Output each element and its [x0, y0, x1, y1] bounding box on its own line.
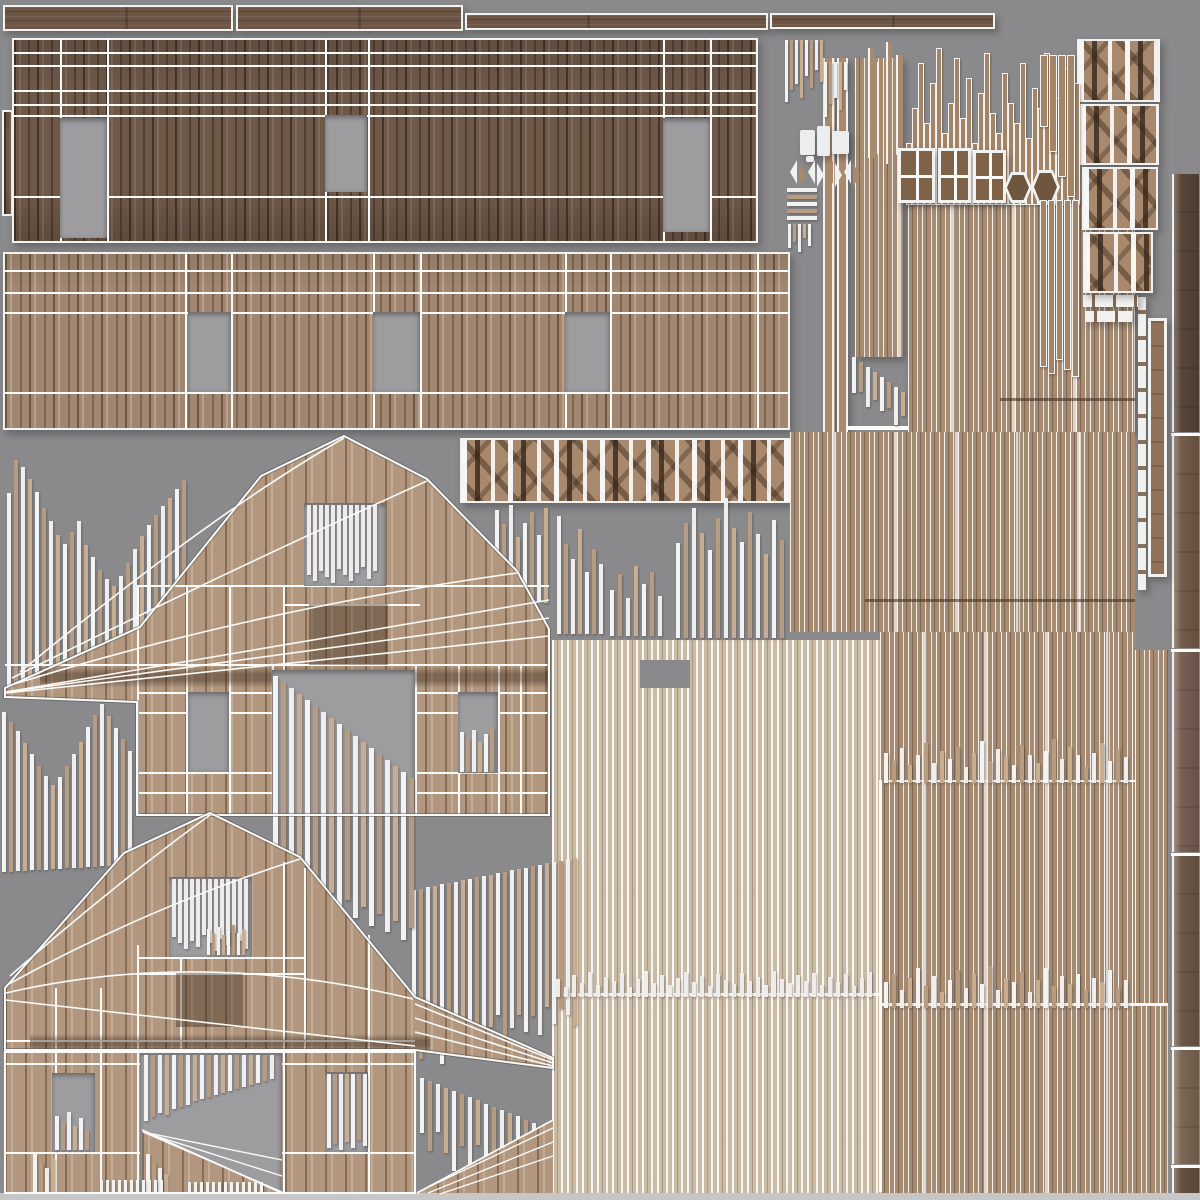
panel-seam: [846, 426, 908, 430]
slat-comb-slat: [756, 534, 760, 638]
loose-slats-slat: [785, 40, 788, 102]
loose-slats-slat: [844, 62, 847, 90]
plank-single: [886, 42, 892, 164]
door-slat-comb-slat: [361, 742, 366, 907]
door-hanging-comb-slat: [256, 1055, 260, 1083]
braced-door-panel: [1083, 232, 1153, 293]
door-hanging-comb-slat: [263, 1055, 267, 1081]
hayloft-inner-comb-slat: [242, 929, 245, 955]
framed-slats-slat: [1056, 200, 1063, 360]
cutout-comb-slat: [55, 1116, 59, 1150]
hayloft-inner-comb-slat: [227, 931, 230, 955]
hayloft-comb-slat: [325, 505, 329, 577]
field-top-comb-slat: [1108, 761, 1112, 783]
slat-comb-slat: [121, 739, 125, 865]
slat-comb-slat: [764, 554, 768, 638]
field-top-comb-slat: [796, 975, 800, 997]
11-tick: [118, 1180, 121, 1192]
field-top-comb-slat: [964, 767, 968, 783]
hardware-blocks: [800, 130, 815, 155]
window-cutout: [188, 692, 229, 772]
dark-patch: [176, 973, 243, 1027]
field-top-comb-slat: [1108, 970, 1112, 1008]
slat-comb-slat: [128, 751, 132, 865]
corner-board-stack-segment: [1172, 1050, 1199, 1164]
slat-comb-slat: [658, 596, 662, 636]
slat-comb-slat: [489, 875, 493, 1027]
field-top-comb-slat: [884, 753, 888, 783]
door-slat-comb-slat: [329, 718, 334, 893]
window-frame-mullion: [901, 175, 932, 178]
field-top-comb-slat: [932, 976, 936, 1008]
framed-slats-slat: [1072, 200, 1079, 377]
field-top-comb-slat: [892, 974, 896, 1008]
step-comb-slat: [901, 392, 905, 416]
hayloft-inner-comb-slat: [232, 925, 235, 955]
field-top-comb-slat: [1068, 984, 1072, 1008]
door-hanging-comb-slat: [249, 1055, 253, 1085]
slat-comb-slat: [23, 743, 27, 871]
loose-slats-slat: [808, 224, 811, 246]
slat-field-left: [552, 640, 880, 995]
field-top-comb-slat: [764, 985, 768, 997]
window-cutout: [188, 312, 231, 392]
slat-comb-slat: [626, 598, 630, 636]
slat-comb-slat: [557, 516, 561, 634]
door-hanging-comb-slat: [242, 1055, 246, 1087]
small-comb-slat: [51, 1158, 55, 1192]
canvas-bottom-edge: [0, 1193, 1200, 1200]
5-rung: [787, 202, 817, 206]
slat-comb-slat: [564, 544, 568, 634]
slat-comb-slat: [79, 742, 83, 868]
top-trim-strip-3: [465, 13, 768, 30]
field-top-comb-slat: [1044, 968, 1048, 1008]
field-top-comb-slat: [588, 972, 592, 997]
small-comb-slat: [39, 1162, 43, 1192]
tail-comb-slat: [476, 1100, 480, 1145]
wire: [283, 585, 285, 670]
slat-comb-slat: [7, 493, 11, 688]
11-tick: [142, 1180, 145, 1192]
cutout-comb-slat: [363, 1074, 367, 1146]
field-top-comb-slat: [996, 990, 1000, 1008]
hayloft-comb-slat: [349, 505, 353, 581]
cutout-comb-slat: [351, 1074, 355, 1148]
field-top-comb-slat: [860, 978, 864, 997]
field-top-comb-slat: [1100, 982, 1104, 1008]
field-top-comb-slat: [804, 981, 808, 997]
slat-comb-slat: [544, 508, 548, 603]
cutout-comb-slat: [61, 1122, 65, 1150]
field-top-comb-slat: [884, 982, 888, 1008]
field-top-comb-slat: [988, 966, 992, 1008]
door-hanging-comb-slat: [270, 1055, 274, 1079]
plank-single: [877, 62, 883, 154]
field-top-comb-slat: [940, 751, 944, 783]
plank-single: [868, 48, 874, 158]
field-top-comb-slat: [1124, 980, 1128, 1008]
5-rung: [787, 209, 817, 213]
13-tick: [194, 1182, 197, 1192]
step-comb-slat: [880, 377, 884, 411]
field-top-comb-slat: [1076, 755, 1080, 783]
slat-comb-slat: [14, 460, 18, 688]
hardware-blocks: [817, 126, 830, 156]
top-trim-strip-4: [770, 13, 995, 29]
hardware-blocks: [832, 131, 849, 154]
field-top-comb-slat: [692, 982, 696, 997]
door-slat-comb-slat: [337, 724, 342, 912]
field-top-comb-slat: [1116, 749, 1120, 783]
corner-board-stack-segment: [1172, 174, 1199, 432]
13-tick: [248, 1182, 251, 1192]
slat-comb-slat: [545, 863, 549, 1007]
wire: [12, 65, 758, 67]
door-hanging-comb-slat: [228, 1055, 232, 1091]
window-cutout: [60, 118, 107, 238]
cutout-comb-slat: [327, 1074, 331, 1148]
field-top-comb-slat: [1012, 982, 1016, 1008]
field-top-comb-slat: [1084, 767, 1088, 783]
wire: [3, 270, 790, 272]
door-slat-comb-slat: [281, 682, 286, 874]
top-trim-strip-2: [236, 5, 463, 31]
hayloft-inner-comb-slat: [217, 927, 220, 955]
field-top-comb-slat: [676, 978, 680, 997]
door-slat-comb-slat: [369, 748, 374, 926]
wire: [420, 252, 422, 430]
field-top-comb-slat: [820, 985, 824, 997]
slat-comb-slat: [496, 873, 500, 1015]
slat-comb-slat: [573, 858, 577, 1026]
field-top-comb-slat: [1052, 986, 1056, 1008]
slat-comb-slat: [42, 508, 46, 686]
field-top-comb-slat: [788, 983, 792, 997]
slat-comb-slat: [21, 467, 25, 687]
11-tick: [154, 1180, 157, 1192]
slat-comb-slat: [58, 777, 62, 869]
framed-slats-slat: [1067, 55, 1075, 197]
tail-comb-slat: [420, 1078, 424, 1133]
field-top-comb-slat: [580, 983, 584, 997]
slat-comb-slat: [618, 574, 622, 636]
loose-slats-slat: [788, 224, 791, 248]
door-hanging-comb-slat: [144, 1055, 148, 1121]
hayloft-comb-slat: [367, 505, 371, 579]
door-slat-comb-slat: [353, 736, 358, 918]
wire: [12, 52, 758, 54]
slat-comb-slat: [30, 754, 34, 870]
wire: [757, 252, 759, 430]
field-top-comb-slat: [708, 986, 712, 997]
field-top-comb-slat: [836, 982, 840, 997]
field-top-comb-slat: [892, 761, 896, 783]
cutout-comb-slat: [67, 1112, 71, 1150]
field-top-comb-slat: [868, 972, 872, 997]
slat-comb-slat: [51, 785, 55, 869]
field-top-comb-slat: [972, 753, 976, 783]
field-top-comb-slat: [1060, 759, 1064, 783]
hayloft-inner-comb-slat: [222, 935, 225, 955]
uv-texture-atlas: [0, 0, 1200, 1200]
window-cutout: [663, 118, 710, 232]
field-top-comb-slat: [684, 972, 688, 997]
field-top-comb-slat: [700, 976, 704, 997]
siding-panel-upper: [12, 38, 758, 243]
field-top-comb-slat: [1044, 751, 1048, 783]
loose-slats-slat: [810, 40, 813, 88]
framed-plank: [1148, 318, 1167, 577]
slat-comb-slat: [44, 776, 48, 870]
slat-comb-slat: [72, 754, 76, 868]
slat-comb-slat: [86, 727, 90, 867]
13-tick: [254, 1182, 257, 1192]
corner-board-stack-divider: [1171, 1165, 1200, 1168]
slat-comb-slat: [2, 712, 6, 872]
field-top-comb-slat: [1004, 757, 1008, 783]
door-slat-comb-slat: [321, 712, 326, 907]
door-hanging-comb-slat: [235, 1055, 239, 1089]
wire: [12, 104, 758, 106]
field-top-comb-slat: [1060, 976, 1064, 1008]
5-rung: [787, 188, 817, 192]
hayloft-comb-slat: [196, 879, 200, 947]
field-top-comb-slat: [660, 975, 664, 997]
door-slat-comb-slat: [401, 772, 406, 940]
wire: [3, 392, 790, 394]
slat-comb-slat: [599, 564, 603, 634]
field-top-comb-slat: [988, 761, 992, 783]
slat-comb-slat: [676, 543, 680, 638]
slat-comb-slat: [524, 868, 528, 1032]
framed-slats-slat: [1058, 55, 1066, 177]
hayloft-comb-slat: [190, 879, 194, 941]
wire: [100, 988, 102, 1193]
panel-seam: [884, 780, 1135, 782]
11-tick: [124, 1180, 127, 1192]
loose-slats-slat: [815, 40, 818, 70]
wire: [137, 945, 139, 1193]
slat-comb-slat: [503, 872, 507, 1044]
cutout-comb-slat: [73, 1126, 77, 1150]
slat-comb-slat: [780, 540, 784, 638]
loose-slats-slat: [803, 224, 806, 238]
slat-comb-slat: [708, 550, 712, 638]
field-top-comb-slat: [636, 979, 640, 997]
field-top-comb-slat: [644, 971, 648, 997]
window-cutout: [373, 312, 420, 392]
field-top-comb-slat: [1116, 988, 1120, 1008]
wire: [283, 862, 285, 1193]
loose-slats-slat: [795, 40, 798, 84]
step-comb-slat: [887, 382, 891, 408]
field-top-comb-slat: [908, 978, 912, 1008]
field-top-comb-slat: [924, 986, 928, 1008]
loose-slats-slat: [824, 62, 827, 117]
rail-strip: [1085, 311, 1132, 322]
door-slat-comb-slat: [409, 778, 414, 928]
braced-door-panel: [1077, 39, 1160, 102]
wire: [12, 90, 758, 92]
framed-slats-slat: [1040, 55, 1048, 127]
door-slat-comb-slat: [313, 706, 318, 886]
wire: [12, 196, 758, 198]
slat-comb-slat: [468, 879, 472, 1039]
field-top-comb-slat: [972, 974, 976, 1008]
hayloft-comb-slat: [337, 505, 341, 569]
cutout-comb-slat: [490, 728, 494, 772]
slat-comb-slat: [700, 533, 704, 638]
loose-slats-slat: [839, 62, 842, 110]
11-tick: [106, 1180, 109, 1192]
field-top-comb-slat: [1028, 992, 1032, 1008]
field-top-comb-slat: [668, 985, 672, 997]
slat-comb-slat: [510, 870, 514, 1028]
door-hanging-comb-slat: [186, 1055, 190, 1105]
loose-slats-slat: [805, 40, 808, 76]
field-top-comb-slat: [980, 741, 984, 783]
field-top-comb-slat: [732, 984, 736, 997]
wire: [610, 252, 612, 430]
field-top-comb-slat: [1004, 978, 1008, 1008]
13-tick: [236, 1182, 239, 1192]
field-top-comb-slat: [596, 985, 600, 997]
field-top-comb-slat: [740, 973, 744, 997]
corner-board-stack-divider: [1171, 853, 1200, 856]
tail-comb-slat: [460, 1094, 464, 1146]
wire: [231, 252, 233, 430]
slat-comb-slat: [65, 766, 69, 868]
field-top-comb-slat: [1012, 765, 1016, 783]
field-top-comb-slat: [1092, 978, 1096, 1008]
field-top-comb-slat: [556, 979, 560, 997]
field-top-comb-slat: [828, 977, 832, 997]
field-top-comb-slat: [628, 987, 632, 997]
hayloft-inner-comb-slat: [212, 933, 215, 955]
step-comb-slat: [873, 372, 877, 400]
hayloft-comb-slat: [178, 879, 182, 943]
field-top-comb-slat: [948, 980, 952, 1008]
loose-slats-slat: [829, 62, 832, 104]
13-tick: [230, 1182, 233, 1192]
field-top-comb-slat: [956, 970, 960, 1008]
field-top-comb-slat: [1020, 972, 1024, 1008]
field-top-comb-slat: [916, 968, 920, 1008]
field-top-comb-slat: [1020, 745, 1024, 783]
window-cutout: [565, 312, 610, 392]
cutout-comb-slat: [478, 742, 482, 772]
field-top-comb-slat: [780, 979, 784, 997]
slat-comb-slat: [634, 566, 638, 636]
wire: [3, 292, 790, 294]
slat-field-mid: [790, 432, 1135, 632]
hayloft-comb-slat: [373, 505, 377, 571]
cutout-comb-slat: [333, 1074, 337, 1144]
hayloft-comb-slat: [331, 505, 335, 583]
corner-board-stack-divider: [1171, 433, 1200, 436]
cutout-comb-slat: [345, 1074, 349, 1142]
slat-comb-slat: [692, 508, 696, 638]
panel-seam: [879, 780, 882, 1192]
panel-seam: [865, 599, 1135, 602]
field-top-comb-slat: [844, 974, 848, 997]
loose-slats-slat: [798, 224, 801, 252]
slat-comb-slat: [56, 535, 60, 685]
door-hanging-comb-slat: [151, 1055, 155, 1117]
door-hanging-comb-slat: [165, 1055, 169, 1115]
slat-comb-slat: [114, 728, 118, 866]
field-top-comb-slat: [1036, 763, 1040, 783]
slat-comb-slat: [28, 479, 32, 687]
braced-door-panel: [1082, 167, 1158, 230]
hayloft-inner-comb-slat: [237, 933, 240, 955]
door-hanging-comb-slat: [172, 1055, 176, 1109]
slat-comb-slat: [537, 535, 541, 601]
tail-comb-slat: [436, 1084, 440, 1132]
field-top-comb-slat: [916, 755, 920, 783]
field-top-comb-slat: [572, 975, 576, 997]
tail-comb-slat: [468, 1097, 472, 1165]
door-hanging-comb-slat: [193, 1055, 197, 1101]
wire: [137, 585, 139, 815]
hayloft-comb-slat: [343, 505, 347, 575]
wire: [710, 38, 712, 243]
field-top-comb-slat: [956, 747, 960, 783]
5-rung: [787, 216, 817, 220]
field-top-comb-slat: [948, 759, 952, 783]
loose-slats-slat: [790, 40, 793, 90]
slat-comb-slat: [772, 520, 776, 638]
field-top-comb-slat: [964, 988, 968, 1008]
field-top-comb-slat: [1028, 755, 1032, 783]
slat-field-bottom-right: [880, 1005, 1168, 1193]
11-tick: [112, 1180, 115, 1192]
slat-comb-slat: [475, 877, 479, 1025]
tail-comb-slat: [452, 1091, 456, 1171]
field-top-comb-slat: [612, 981, 616, 997]
door-hanging-comb-slat: [200, 1055, 204, 1099]
corner-board-stack-divider: [1171, 1047, 1200, 1050]
slat-comb-slat: [107, 716, 111, 866]
hayloft-comb-slat: [220, 879, 224, 939]
cutout-comb-slat: [472, 730, 476, 772]
slat-comb-slat: [592, 549, 596, 634]
small-comb-slat: [33, 1154, 37, 1192]
field-top-comb-slat: [1124, 757, 1128, 783]
wire: [368, 935, 370, 1193]
11-tick: [100, 1180, 103, 1192]
rail-strip: [1083, 295, 1138, 307]
11-tick: [160, 1180, 163, 1192]
field-top-comb-slat: [1036, 980, 1040, 1008]
field-top-comb-slat: [1084, 990, 1088, 1008]
small-comb-slat: [164, 1174, 168, 1192]
slat-comb-slat: [748, 512, 752, 638]
hayloft-comb-slat: [313, 505, 317, 581]
field-top-comb-slat: [748, 981, 752, 997]
corner-board-stack-segment: [1172, 436, 1199, 648]
framed-slats-slat: [1049, 55, 1057, 152]
slat-comb-slat: [35, 492, 39, 686]
door-slat-comb-slat: [385, 760, 390, 932]
slat-comb-slat: [16, 731, 20, 871]
field-top-comb-slat: [924, 743, 928, 783]
hayloft-comb-slat: [355, 505, 359, 573]
door-slat-comb-slat: [377, 754, 382, 914]
window-frame-mullion: [941, 175, 968, 178]
hayloft-inner-comb-slat: [207, 929, 210, 955]
